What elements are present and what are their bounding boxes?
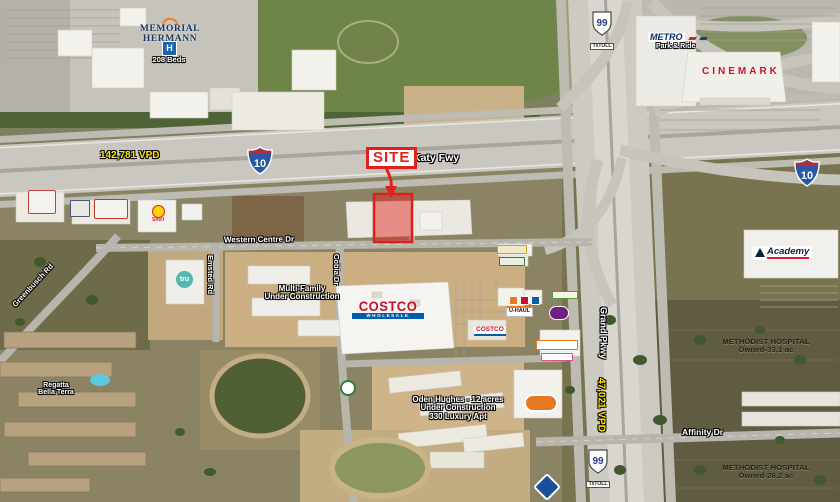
interstate-shield-icon: 10 xyxy=(794,158,820,187)
costco-gas-logo: COSTCO xyxy=(474,327,506,336)
tx99-traffic-count: 47,021 VPD xyxy=(595,378,606,432)
shell-word: Shell xyxy=(143,218,173,223)
dark-plaza-logo xyxy=(70,200,90,217)
metro-stripe-red-icon xyxy=(688,37,696,40)
regatta-bella-terra-note: Regatta Bella Terra xyxy=(16,382,96,397)
katy-fwy-label: Katy Fwy xyxy=(413,153,459,164)
tru-hotel-logo: tru xyxy=(176,271,193,288)
academy-triangle-icon xyxy=(755,248,765,257)
red-pad-logo xyxy=(520,296,529,305)
street-cobia-dr: Cobia Dr xyxy=(332,254,340,285)
methodist-south-note: METHODIST HOSPITAL Owned-26.2 ac xyxy=(700,464,832,480)
tx99-toll-tag: TxTOLL xyxy=(586,481,610,488)
purple-oval-logo xyxy=(549,306,569,320)
methodist-north-note: METHODIST HOSPITAL Owned-33.1 ac xyxy=(700,338,832,354)
oden-hughes-note: Oden Hughes - 12 acres Under Constructio… xyxy=(388,396,528,421)
street-western-centre-dr: Western Centre Dr xyxy=(224,236,294,245)
methodist-north-line2: Owned-33.1 ac xyxy=(700,346,832,354)
orange-oval-logo xyxy=(524,394,558,412)
site-callout: SITE xyxy=(366,147,417,169)
shell-station-logo: Shell xyxy=(143,205,173,223)
methodist-south-line2: Owned-26.2 ac xyxy=(700,472,832,480)
metro-park-and-ride: Park & Ride xyxy=(656,43,695,50)
academy-word: Academy xyxy=(767,247,809,259)
i10-shield-left: 10 xyxy=(247,146,273,180)
svg-text:10: 10 xyxy=(254,158,266,170)
regatta-line2: Bella Terra xyxy=(16,389,96,396)
red-script-logo xyxy=(94,199,128,219)
tx99-shield-icon: 99 xyxy=(586,449,610,475)
hospital-h-sign-icon: H xyxy=(162,41,177,56)
street-emsted-rd: Emsted Rd xyxy=(206,255,214,294)
yellow-strip-logo xyxy=(497,245,527,254)
aerial-site-map: MEMORIAL HERMANN H 208 Beds 99 TxTOLL ME… xyxy=(0,0,840,502)
costco-logo: COSTCO WHOLESALE xyxy=(352,300,424,319)
tx99-toll-tag: TxTOLL xyxy=(590,43,614,50)
oden-line3: 330 Luxury Apt xyxy=(388,413,528,421)
metro-name: METRO xyxy=(648,32,685,42)
grand-pkwy-label: Grand Pkwy xyxy=(598,307,607,359)
cinemark-logo: CINEMARK xyxy=(702,67,780,78)
memorial-hermann-beds: 208 Beds xyxy=(138,56,200,64)
academy-logo: Academy xyxy=(752,246,812,260)
svg-text:10: 10 xyxy=(801,170,813,182)
tx99-shield-icon: 99 xyxy=(590,11,614,37)
yellow-green-text-logo xyxy=(552,291,578,299)
uhaul-logo: U-HAUL xyxy=(506,306,533,317)
site-parcel-highlight xyxy=(374,194,412,242)
i10-traffic-count: 142,781 VPD xyxy=(100,151,160,162)
site-arrow-icon xyxy=(380,168,402,199)
green-strip-logo xyxy=(499,257,525,266)
costco-name: COSTCO xyxy=(352,300,424,314)
green-circle-logo xyxy=(340,380,356,396)
svg-text:99: 99 xyxy=(592,456,604,467)
white-orange-text-logo xyxy=(536,340,578,350)
i10-shield-right: 10 xyxy=(794,158,820,192)
pink-text-logo xyxy=(541,353,573,361)
tx99-shield-top: 99 TxTOLL xyxy=(590,11,614,50)
street-affinity-dr: Affinity Dr xyxy=(682,428,723,437)
blue-pad-logo xyxy=(531,296,540,305)
tx99-shield-bottom: 99 TxTOLL xyxy=(586,449,610,488)
interstate-shield-icon: 10 xyxy=(247,146,273,175)
svg-text:99: 99 xyxy=(596,18,608,29)
orange-pad-logo xyxy=(509,296,518,305)
red-white-strip-logo xyxy=(28,190,56,214)
metro-stripe-blue-icon xyxy=(700,37,708,40)
